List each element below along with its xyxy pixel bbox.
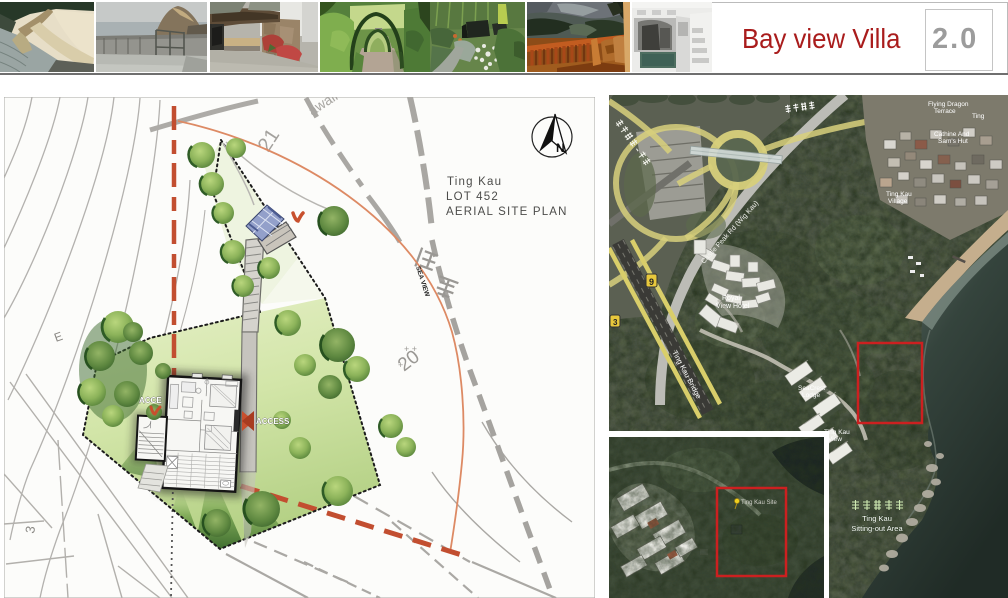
svg-text:Village: Village [888, 198, 908, 205]
svg-text:SeaCrest: SeaCrest [798, 385, 825, 392]
svg-text:Flying Dragon: Flying Dragon [928, 101, 969, 108]
svg-text:Sam's Hut: Sam's Hut [938, 138, 968, 145]
svg-text:Lodge: Lodge [802, 392, 820, 399]
svg-text:LOT 452: LOT 452 [446, 191, 499, 203]
svg-text:+ +: + + [404, 344, 417, 354]
svg-text:Royal: Royal [722, 295, 740, 302]
svg-text:View: View [828, 436, 842, 443]
svg-text:Ting Kau Site: Ting Kau Site [741, 500, 777, 506]
svg-text:Ting Kau: Ting Kau [886, 191, 912, 198]
svg-text:Sitting-out Area: Sitting-out Area [851, 524, 903, 533]
svg-text:ACCE: ACCE [139, 396, 162, 405]
svg-text:Ting Kau: Ting Kau [447, 176, 502, 188]
svg-text:3: 3 [613, 318, 618, 327]
svg-text:AERIAL SITE PLAN: AERIAL SITE PLAN [446, 206, 568, 218]
svg-text:ACCESS: ACCESS [256, 417, 290, 426]
svg-text:Ting Kau: Ting Kau [862, 514, 892, 523]
svg-text:Cathine And: Cathine And [934, 131, 970, 138]
svg-text:+: + [398, 360, 403, 370]
svg-text:Terrace: Terrace [934, 108, 956, 115]
svg-text:Ting: Ting [972, 113, 985, 120]
svg-text:N: N [556, 141, 565, 155]
svg-text:9: 9 [649, 277, 654, 287]
